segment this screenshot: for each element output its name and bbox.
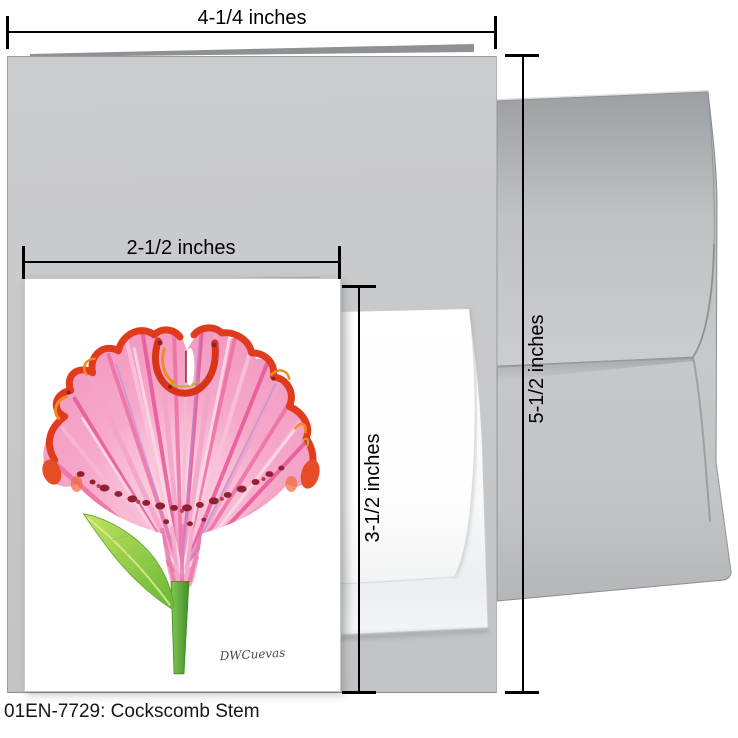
product-caption: 01EN-7729: Cockscomb Stem <box>4 701 260 723</box>
dim-insert-height-line <box>358 287 360 693</box>
dim-insert-height-tick-bottom <box>342 691 376 694</box>
dim-card-height-label: 5-1/2 inches <box>526 315 548 424</box>
dim-insert-width-label: 2-1/2 inches <box>127 237 236 259</box>
bloom <box>39 327 323 587</box>
dim-card-height-line <box>522 55 524 693</box>
stem <box>171 581 189 673</box>
product-mockup: DWCuevas 4-1/4 inches 2-1/2 inches 5-1/2… <box>0 0 738 738</box>
dim-insert-width-tick-right <box>338 246 341 279</box>
dim-card-width-tick-right <box>494 16 497 49</box>
dim-card-height-tick-top <box>505 54 539 57</box>
dim-insert-height-label: 3-1/2 inches <box>362 434 384 543</box>
artist-signature: DWCuevas <box>218 646 285 663</box>
insert-card: DWCuevas <box>24 278 341 692</box>
dim-insert-height-tick-top <box>342 285 376 288</box>
dim-card-height-tick-bottom <box>505 691 539 694</box>
dim-insert-width-tick-left <box>22 246 25 279</box>
cockscomb-artwork: DWCuevas <box>25 279 340 691</box>
dim-insert-width-line <box>23 261 340 263</box>
envelope-small-shape <box>338 309 489 641</box>
dim-card-width-line <box>7 31 496 33</box>
dim-card-width-label: 4-1/4 inches <box>198 7 307 29</box>
dim-card-width-tick-left <box>6 16 9 49</box>
bloom-slit <box>185 348 194 386</box>
